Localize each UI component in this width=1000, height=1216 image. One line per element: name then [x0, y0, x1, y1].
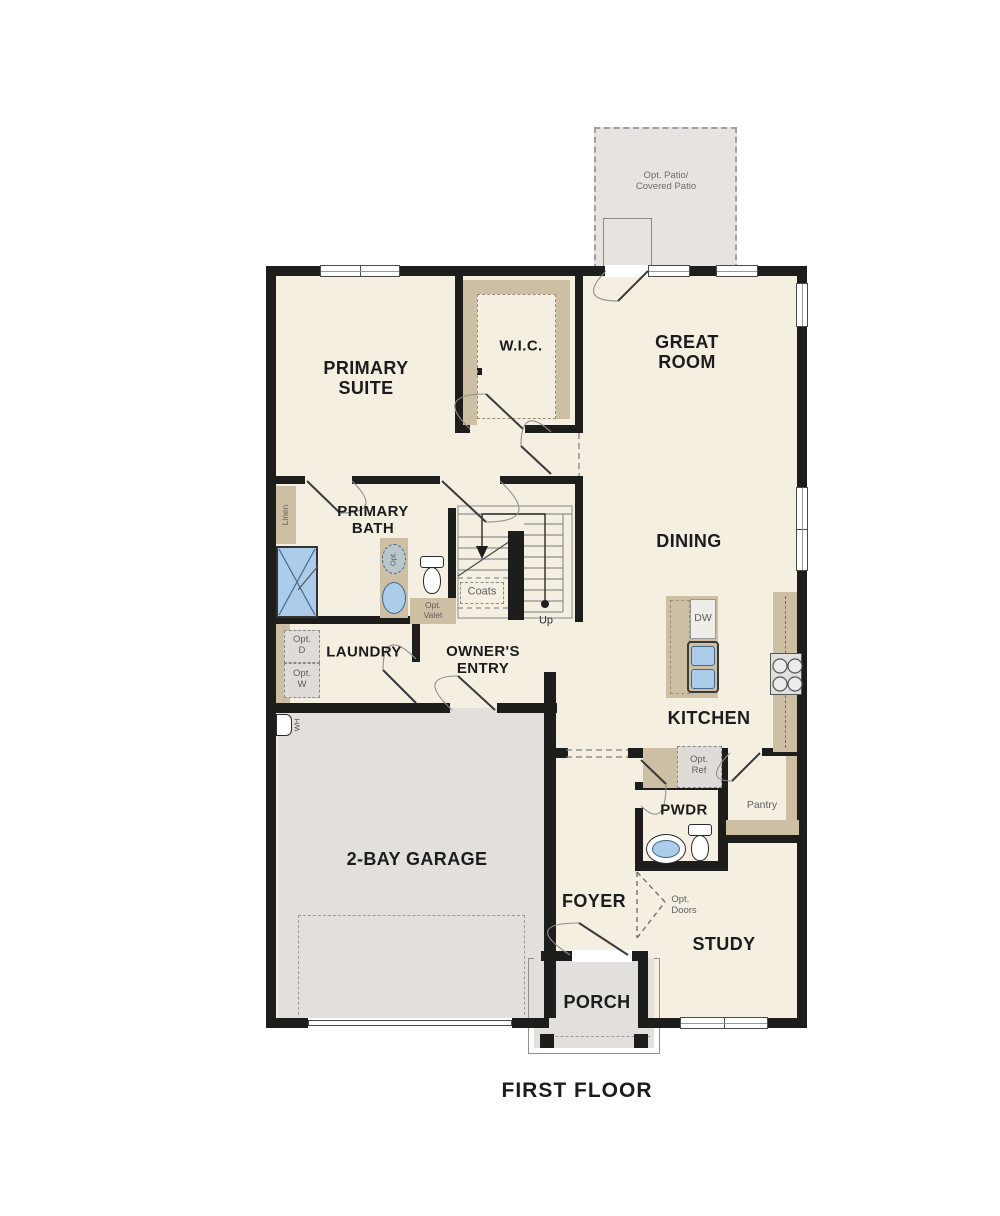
- room-label-kitchen: KITCHEN: [668, 708, 751, 728]
- stairhall-door-leaf: [442, 481, 486, 522]
- pantry-door-leaf: [732, 753, 760, 781]
- room-label-pwdr: PWDR: [660, 803, 707, 820]
- patio-label: Opt. Patio/ Covered Patio: [636, 171, 696, 193]
- opt-doors-dashed: [637, 872, 665, 938]
- room-label-foyer: FOYER: [562, 891, 626, 911]
- bath-door-leaf: [307, 481, 340, 513]
- opt-sink-label: Opt.: [390, 552, 399, 566]
- shower-glass-lines: [279, 549, 318, 615]
- up-label: Up: [539, 615, 553, 628]
- opt-doors-label: Opt. Doors: [671, 895, 696, 917]
- room-label-porch: PORCH: [563, 992, 630, 1012]
- water-heater-label: WH: [294, 719, 303, 732]
- plan-linework: [0, 0, 1000, 1216]
- room-label-wic: W.I.C.: [499, 339, 542, 356]
- opt-valet-label: Opt. Valet: [424, 601, 443, 621]
- opt-ref-label: Opt. Ref: [690, 755, 708, 777]
- opt-washer-label: Opt. W: [293, 669, 311, 691]
- range-burners: [773, 659, 802, 691]
- stair-center-wall: [508, 531, 524, 620]
- room-label-dining: DINING: [656, 531, 721, 551]
- room-label-laundry: LAUNDRY: [326, 645, 402, 662]
- room-label-great-room: GREAT ROOM: [655, 332, 719, 372]
- wic-door-leaf: [486, 394, 523, 429]
- dishwasher-label: DW: [694, 612, 712, 624]
- room-label-owners-entry: OWNER'S ENTRY: [446, 644, 520, 678]
- front-door-leaf: [579, 923, 628, 955]
- patio-door-leaf: [618, 271, 648, 301]
- room-label-garage: 2-BAY GARAGE: [347, 849, 488, 869]
- floor-plan: Opt. Patio/ Covered Patio PRIMARY SUITE …: [0, 0, 1000, 1216]
- owners-entry-door-leaf: [458, 676, 495, 710]
- cased-openings: [566, 433, 628, 757]
- stair-start-dot: [541, 600, 549, 608]
- room-label-primary-bath: PRIMARY BATH: [337, 504, 408, 538]
- linen-label: Linen: [281, 505, 291, 526]
- hall-door-leaf: [521, 446, 551, 474]
- laundry-door-leaf: [383, 670, 416, 703]
- pwdr-door-leaf: [641, 760, 666, 784]
- opt-dryer-label: Opt. D: [293, 635, 311, 657]
- pantry-label: Pantry: [747, 799, 777, 811]
- floor-title: FIRST FLOOR: [502, 1079, 653, 1103]
- room-label-primary-suite: PRIMARY SUITE: [323, 358, 408, 398]
- room-label-study: STUDY: [692, 934, 755, 954]
- coats-label: Coats: [468, 586, 497, 599]
